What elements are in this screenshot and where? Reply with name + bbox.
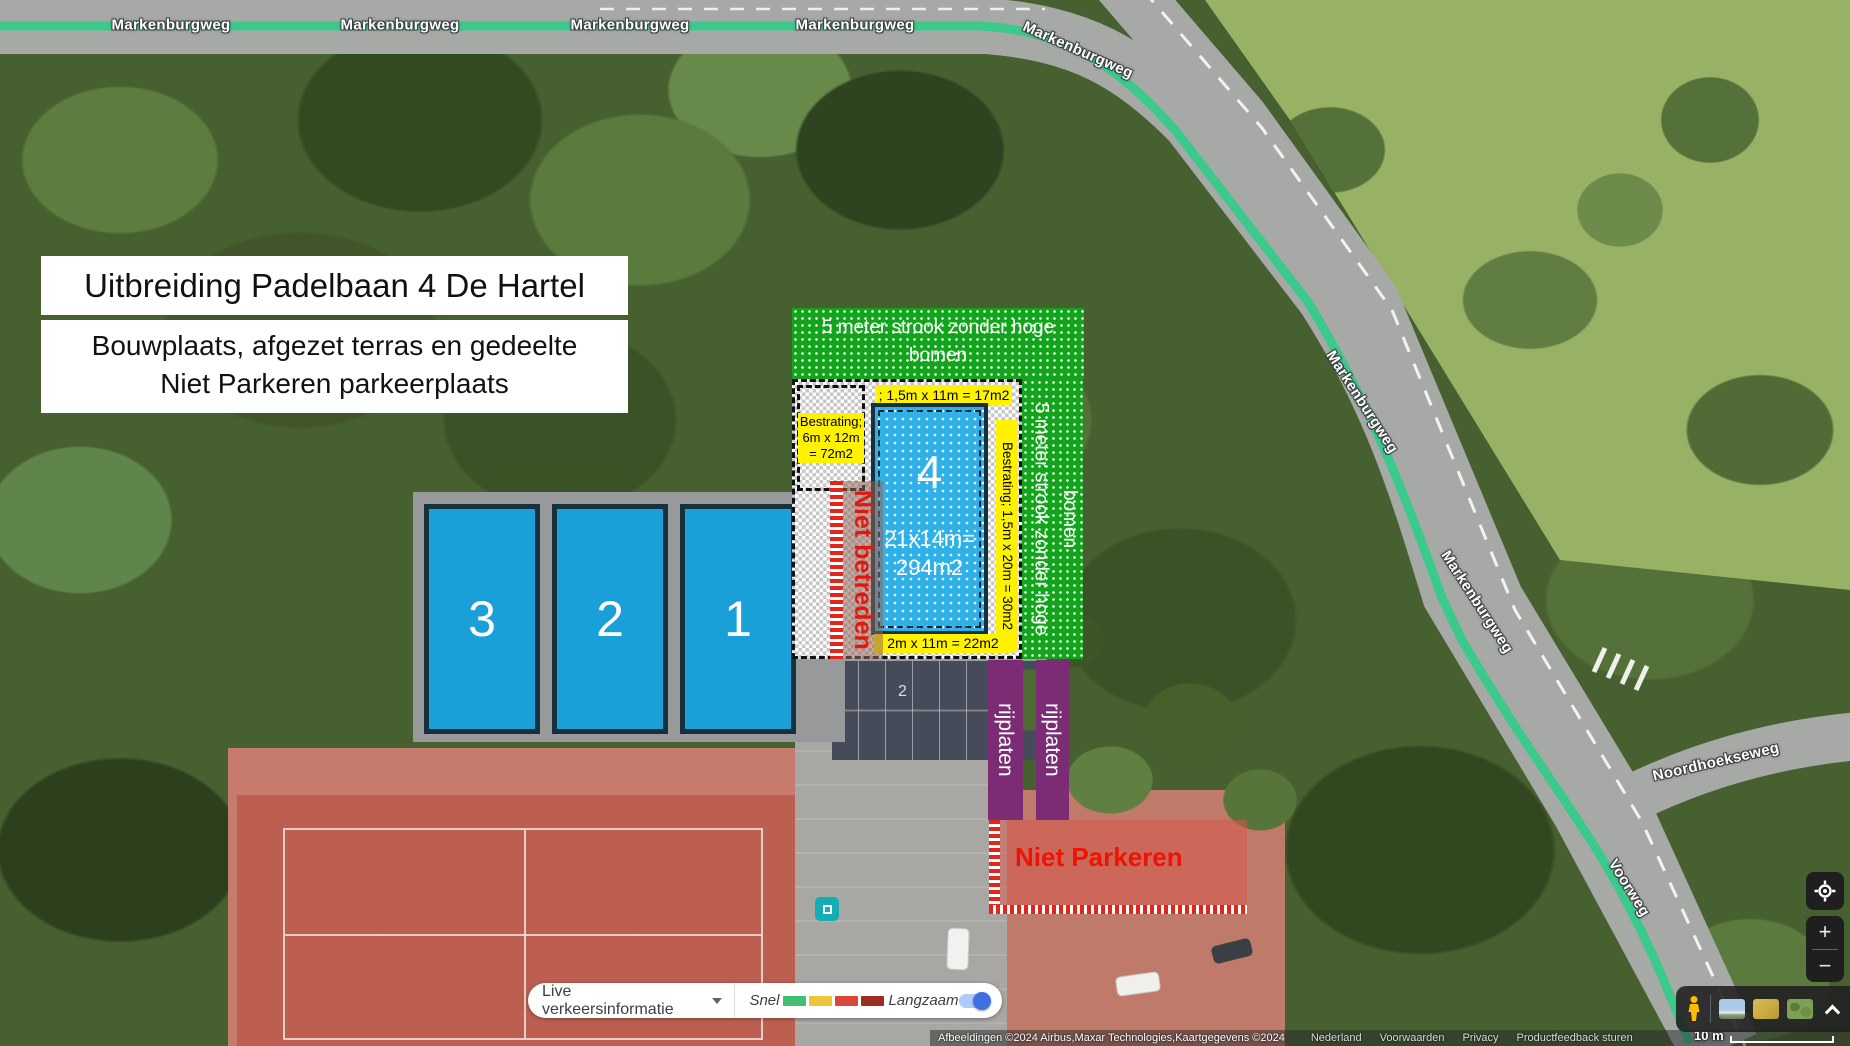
bestrating-right-label: Bestrating; 1,5m x 20m = 30m2 <box>996 420 1018 652</box>
link-nederland[interactable]: Nederland <box>1311 1032 1362 1044</box>
niet-parkeren-stripes-bottom <box>989 905 1247 914</box>
bestrating-left-label: Bestrating; 6m x 12m = 72m2 <box>798 413 864 464</box>
road-noordhoekseweg <box>1600 735 1850 815</box>
court-number: 2 <box>596 590 624 648</box>
zebra-crossing <box>1594 648 1647 690</box>
court-4-dashed-outline <box>878 410 981 628</box>
traffic-dropdown-label[interactable]: Live verkeersinformatie <box>542 983 704 1019</box>
divider <box>1710 995 1711 1023</box>
imagery-thumbnail-3[interactable] <box>1787 999 1813 1019</box>
zoom-out-button[interactable]: − <box>1806 950 1844 983</box>
road-label-markenburgweg-3: Markenburgweg <box>571 17 690 34</box>
road-label-markenburgweg-1: Markenburgweg <box>112 17 231 34</box>
divider <box>734 983 735 1018</box>
traffic-legend-darkred <box>861 996 884 1006</box>
chevron-up-icon[interactable] <box>1825 1004 1841 1020</box>
link-privacy[interactable]: Privacy <box>1462 1032 1498 1044</box>
rijplaten-strip-left: rijplaten <box>988 660 1023 820</box>
pegman-icon[interactable] <box>1686 995 1702 1023</box>
courts-platform: 3 2 1 <box>413 492 845 742</box>
link-voorwaarden[interactable]: Voorwaarden <box>1380 1032 1445 1044</box>
road-label-markenburgweg-2: Markenburgweg <box>341 17 460 34</box>
green-strip-top: 5 meter strook zonder hoge bomen <box>792 308 1084 379</box>
map-viewport[interactable]: Markenburgweg Markenburgweg Markenburgwe… <box>0 0 1850 1046</box>
niet-betreden-label: Niet betreden <box>843 481 883 659</box>
page-subtitle: Bouwplaats, afgezet terras en gedeelte N… <box>41 320 628 413</box>
dimension-label-top: ; 1,5m x 11m = 17m2 <box>876 385 1012 405</box>
court-number: 3 <box>468 590 496 648</box>
padel-court-4: 4 21x14m= 294m2 <box>871 403 988 635</box>
zoom-in-button[interactable]: + <box>1806 916 1844 949</box>
imagery-thumbnail-1[interactable] <box>1719 999 1745 1019</box>
padel-court-2: 2 <box>552 504 668 734</box>
niet-parkeren-label: Niet Parkeren <box>1015 842 1183 873</box>
poi-marker[interactable] <box>815 897 839 921</box>
traffic-legend <box>783 996 884 1006</box>
parking-spot-number: 2 <box>898 683 907 701</box>
link-feedback[interactable]: Productfeedback sturen <box>1517 1032 1633 1044</box>
dimension-label-bottom: 2m x 11m = 22m2 <box>874 634 1012 653</box>
imagery-credit: Afbeeldingen ©2024 Airbus,Maxar Technolo… <box>938 1032 1285 1044</box>
traffic-control-bar[interactable]: Live verkeersinformatie Snel Langzaam <box>528 983 1002 1018</box>
court-number: 1 <box>724 590 752 648</box>
rijplaten-strip-right: rijplaten <box>1036 660 1069 820</box>
niet-parkeren-stripes-left <box>989 820 1000 914</box>
parked-car-white-1 <box>946 928 969 971</box>
chevron-down-icon[interactable] <box>712 998 722 1004</box>
green-strip-right: 5 meter strook zonder hoge bomen <box>1022 379 1083 659</box>
parking-carport: 2 <box>832 658 1068 760</box>
my-location-button[interactable] <box>1806 872 1844 910</box>
zoom-control[interactable]: + − <box>1806 916 1844 982</box>
padel-court-3: 3 <box>424 504 540 734</box>
bestrating-left-zone: Bestrating; 6m x 12m = 72m2 <box>797 385 865 491</box>
road-label-markenburgweg-4: Markenburgweg <box>796 17 915 34</box>
imagery-thumbnail-2[interactable] <box>1753 999 1779 1019</box>
traffic-legend-yellow <box>809 996 832 1006</box>
traffic-slow-label: Langzaam <box>888 992 958 1009</box>
page-title: Uitbreiding Padelbaan 4 De Hartel <box>41 256 628 315</box>
traffic-toggle[interactable] <box>959 994 988 1008</box>
traffic-toggle-knob[interactable] <box>973 992 991 1010</box>
court-number: 4 <box>875 445 984 499</box>
traffic-legend-red <box>835 996 858 1006</box>
imagery-toolbar[interactable] <box>1676 986 1850 1032</box>
niet-parkeren-zone: Niet Parkeren <box>989 820 1247 914</box>
my-location-icon <box>1814 880 1836 902</box>
traffic-legend-green <box>783 996 806 1006</box>
court-4-dimensions: 21x14m= 294m2 <box>875 525 984 582</box>
niet-betreden-stripes <box>830 481 843 659</box>
poi-marker-icon <box>823 905 832 914</box>
padel-court-1: 1 <box>680 504 796 734</box>
traffic-fast-label: Snel <box>749 992 779 1009</box>
scale-bar <box>1730 1036 1834 1043</box>
